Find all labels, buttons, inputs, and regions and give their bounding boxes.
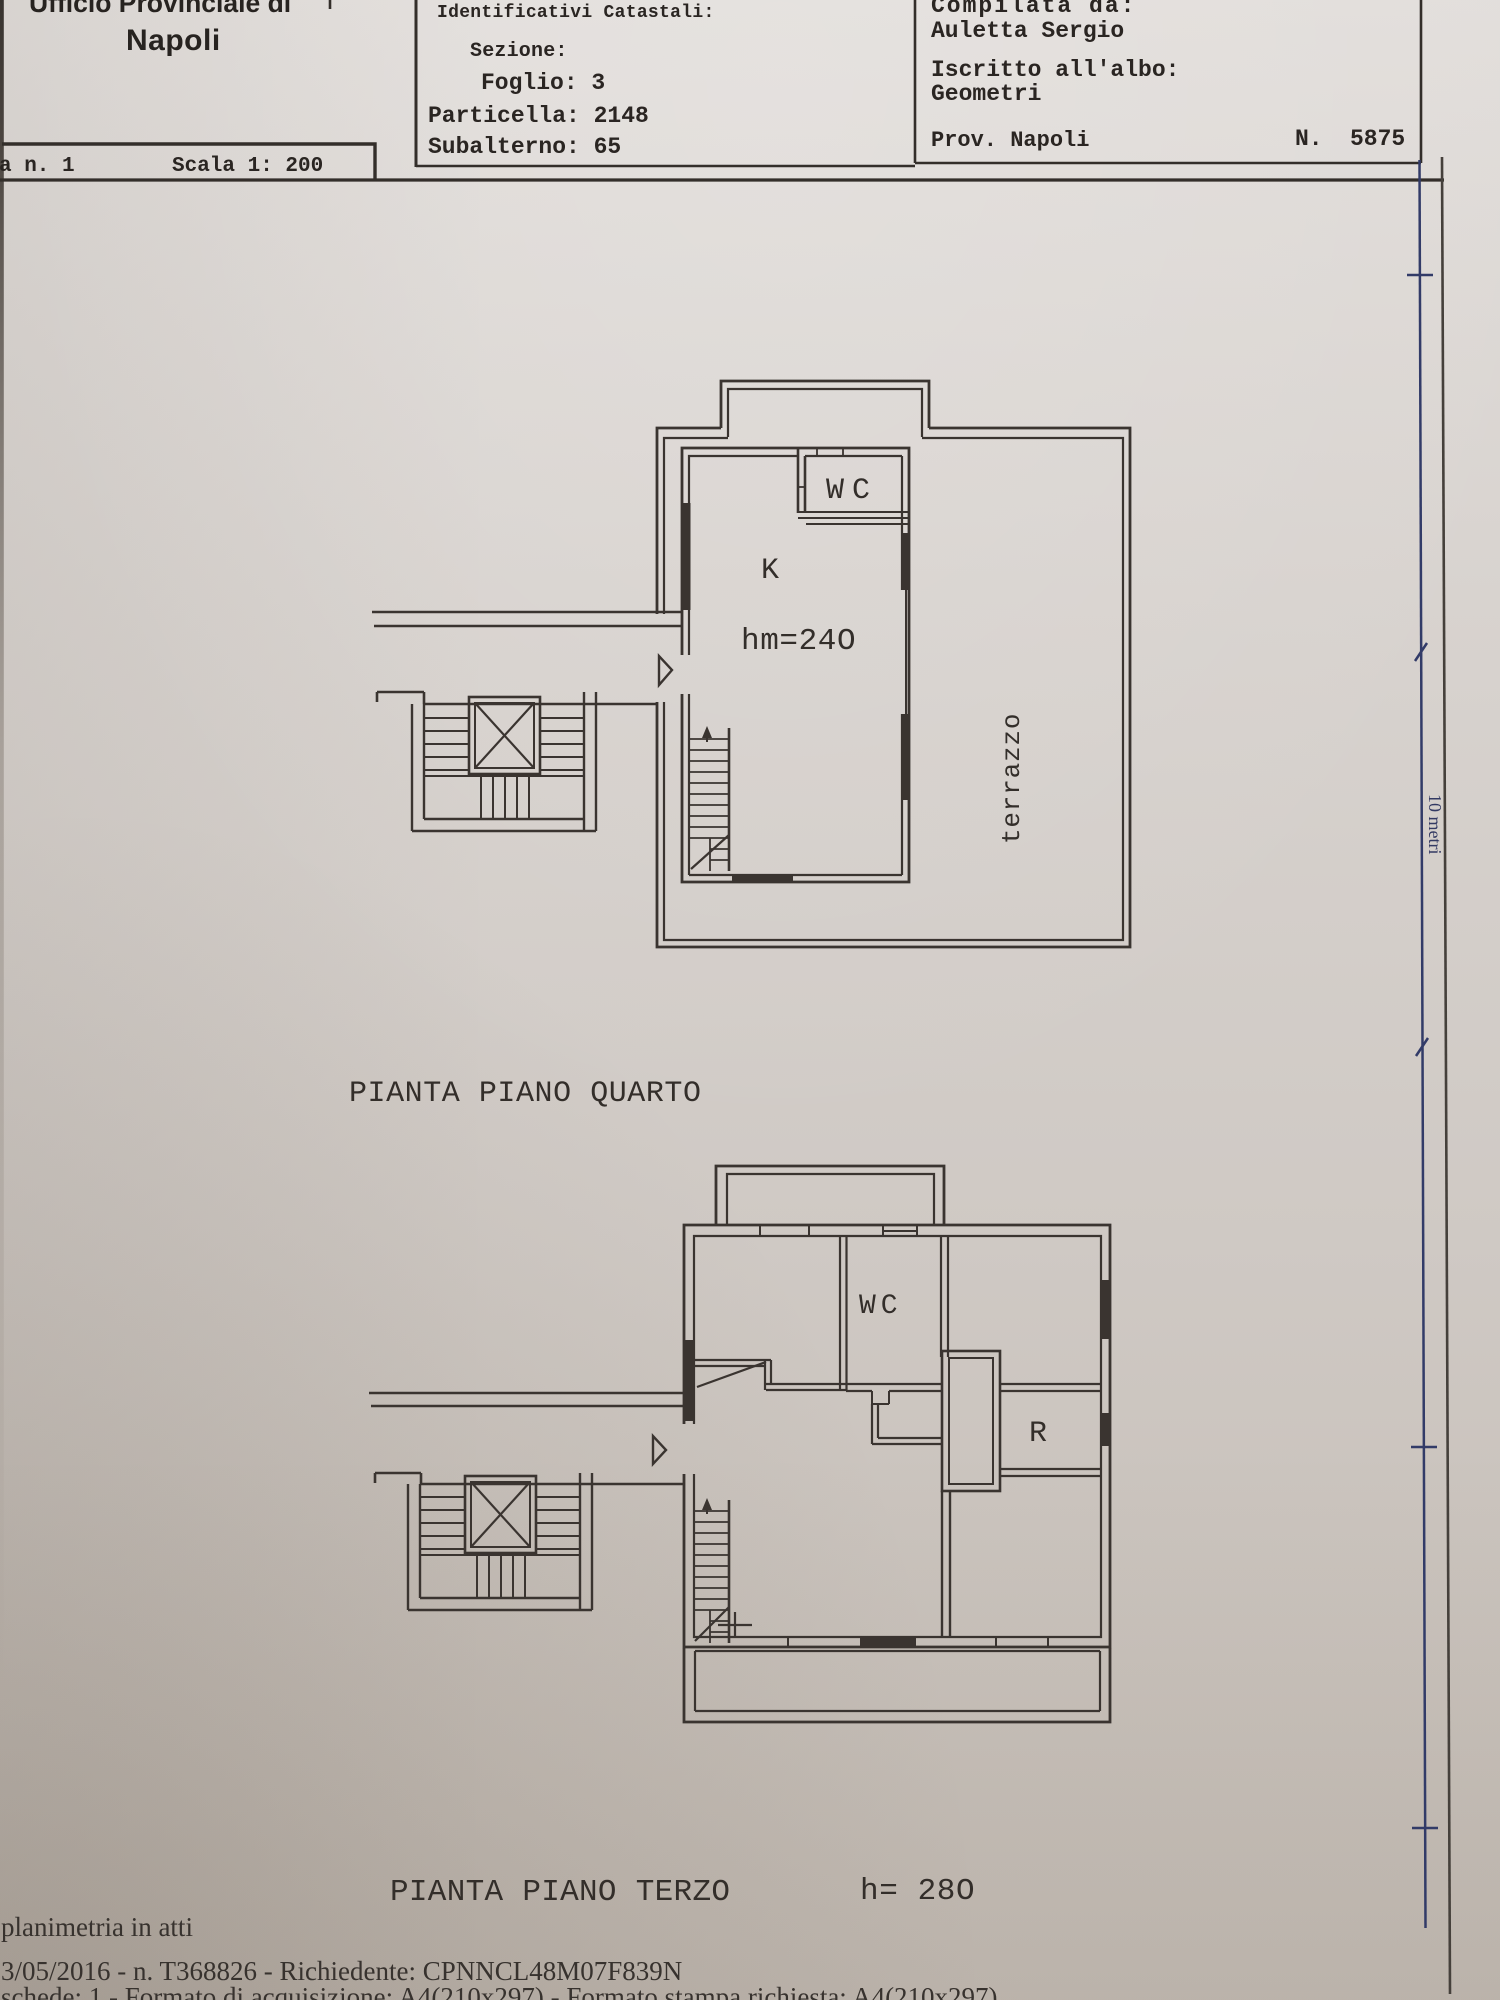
svg-text:Subalterno: 65: Subalterno: 65 <box>428 134 621 160</box>
svg-text:Scala 1: 200: Scala 1: 200 <box>172 155 323 178</box>
svg-text:Sezione:: Sezione: <box>470 40 568 63</box>
svg-text:h= 28O: h= 28O <box>860 1874 975 1909</box>
svg-text:a n. 1: a n. 1 <box>0 155 75 178</box>
svg-text:Prov. Napoli: Prov. Napoli <box>931 128 1089 153</box>
svg-text:Foglio: 3: Foglio: 3 <box>481 70 605 96</box>
svg-text:Napoli: Napoli <box>126 24 221 57</box>
svg-text:PIANTA PIANO QUARTO: PIANTA PIANO QUARTO <box>349 1077 702 1111</box>
svg-text:10 metri: 10 metri <box>1425 794 1445 855</box>
svg-text:WC: WC <box>826 474 878 508</box>
svg-text:Ufficio Provinciale di: Ufficio Provinciale di <box>29 0 291 18</box>
svg-text:schede: 1 - Formato di acquisi: schede: 1 - Formato di acquisizione: A4(… <box>1 1982 998 2000</box>
svg-text:Compilata da:: Compilata da: <box>931 0 1136 19</box>
svg-text:5875: 5875 <box>1350 126 1405 152</box>
svg-text:R: R <box>1029 1417 1047 1451</box>
svg-text:terrazzo: terrazzo <box>997 713 1027 844</box>
svg-text:planimetria in atti: planimetria in atti <box>1 1912 193 1942</box>
svg-text:Particella: 2148: Particella: 2148 <box>428 103 649 129</box>
svg-text:WC: WC <box>859 1291 903 1322</box>
svg-text:hm=24O: hm=24O <box>741 624 856 659</box>
svg-text:Identificativi Catastali:: Identificativi Catastali: <box>437 3 715 23</box>
svg-text:N.: N. <box>1295 126 1323 152</box>
svg-text:Geometri: Geometri <box>931 81 1041 107</box>
svg-text:Iscritto all'albo:: Iscritto all'albo: <box>931 57 1179 83</box>
svg-text:PIANTA PIANO TERZO: PIANTA PIANO TERZO <box>390 1875 730 1910</box>
svg-text:K: K <box>761 554 779 588</box>
svg-text:Auletta Sergio: Auletta Sergio <box>931 18 1124 44</box>
